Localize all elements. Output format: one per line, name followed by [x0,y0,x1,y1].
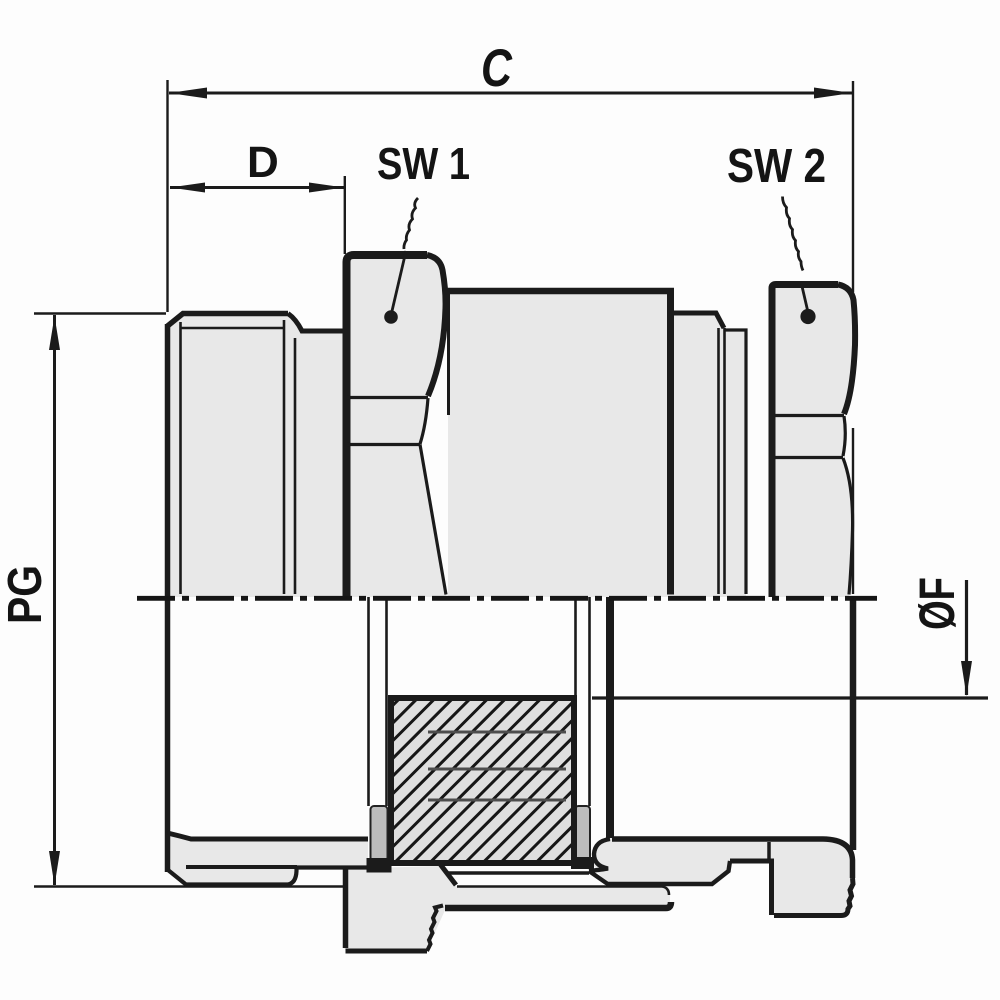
svg-text:SW 2: SW 2 [727,140,826,193]
svg-text:SW 1: SW 1 [377,138,470,189]
svg-text:ØF: ØF [909,577,965,630]
svg-text:C: C [481,39,513,98]
svg-text:PG: PG [0,565,52,624]
svg-text:D: D [247,138,279,187]
